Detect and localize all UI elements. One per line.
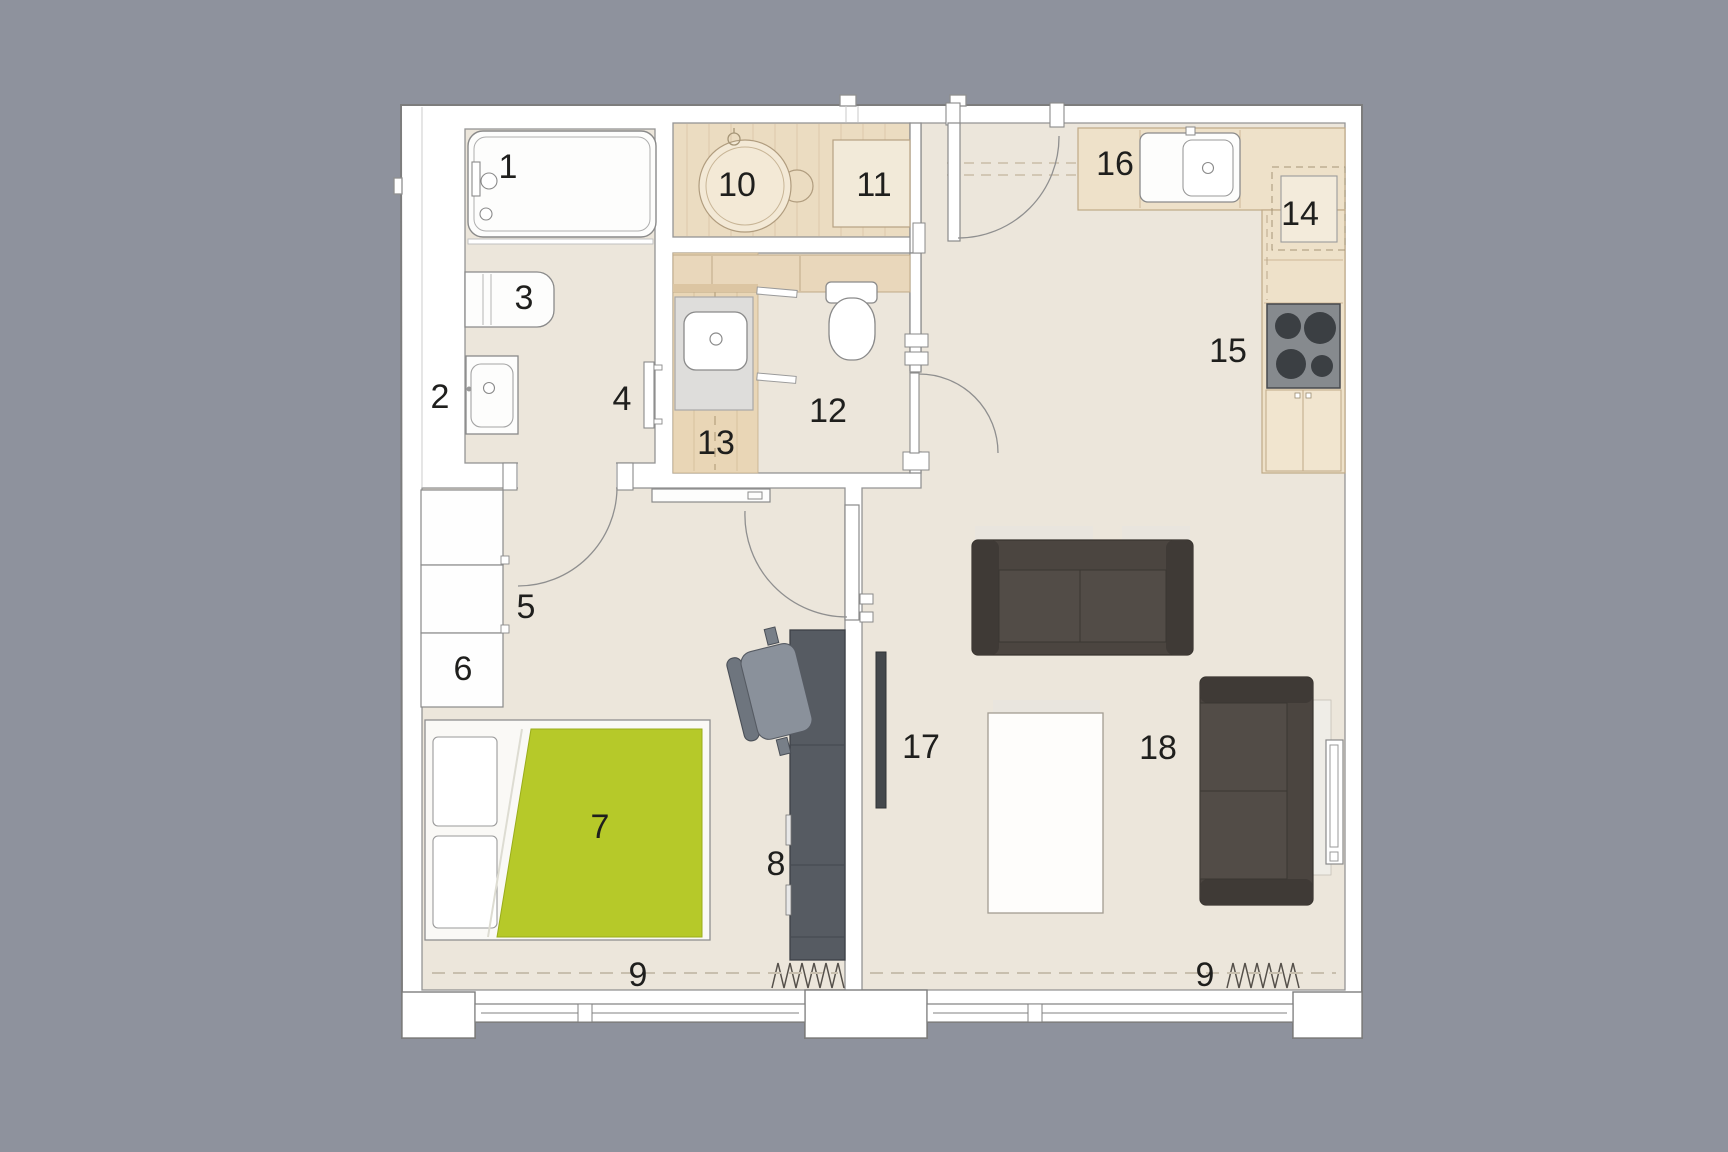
bath-basin-dot-icon [467,387,472,392]
label-window-bedroom: 9 [629,956,648,994]
label-washbasin-bath: 2 [431,378,450,416]
entry-door-post-right [1050,103,1064,127]
label-washing-machine: 3 [515,279,534,317]
hall-door-leaf [845,505,859,620]
bathtub-shelf [468,239,653,244]
floor-plan-page: 1 2 3 4 5 6 7 8 9 10 11 12 13 14 15 16 1… [0,0,1728,1152]
wall-joint-tab-left [394,178,402,194]
label-wc: 12 [809,392,847,430]
label-washbasin-wc: 13 [697,424,735,462]
label-stove: 15 [1209,332,1247,370]
sofa-h-arm-right [1166,540,1193,655]
label-cabinet-low: 6 [454,650,473,688]
hall-door-bracket-2 [860,612,873,622]
wall-joint-tab-top1 [840,95,856,106]
sink-drain-icon [1203,163,1214,174]
cabinet-knob-right [1306,393,1311,398]
bathtub-drain-icon [480,208,492,220]
pier-left [402,992,475,1038]
desk-handle-2 [786,885,791,915]
wardrobe-hinge-2 [501,625,509,633]
pier-right [1293,992,1362,1038]
wardrobe-hinge-1 [501,556,509,564]
washing-machine [465,272,554,327]
coffee-table-shadow [993,700,1100,714]
bathtub-tap-icon [472,162,480,196]
wc-cabinet-dark-band [673,284,758,292]
entry-door-post-left [946,103,960,125]
hall-door-bracket-1 [860,594,873,604]
bed-pillow-2 [433,836,497,928]
burner-4 [1311,355,1333,377]
bathroom-door-post-right [617,463,633,490]
label-towel-radiator: 4 [613,380,632,418]
wc-door-post-bottom [903,452,929,470]
wc-door-bracket-1 [905,334,928,347]
bathtub-handle-icon [481,173,497,189]
towel-radiator [644,362,654,428]
wardrobe-middle [421,565,503,633]
bath-basin-faucet-icon [484,383,495,394]
toilet-bowl [829,298,875,360]
label-bed: 7 [591,808,610,846]
wc-door-bracket-2 [905,352,928,365]
coffee-table [988,713,1103,913]
label-desk: 8 [767,845,786,883]
label-living: 18 [1139,729,1177,767]
label-sink: 16 [1096,145,1134,183]
towel-radiator-bracket-bottom [654,419,662,424]
sofa-v-seat-top [1200,703,1287,791]
floor-plan-drawing: 1 2 3 4 5 6 7 8 9 10 11 12 13 14 15 16 1… [0,0,1728,1152]
desk-handle-1 [786,815,791,845]
entry-door-leaf [948,123,960,241]
wardrobe-top [421,490,503,565]
window-mullion-left [578,1004,592,1022]
label-tv: 17 [902,728,940,766]
wc-door-leaf [910,373,919,453]
bed-pillow-1 [433,737,497,826]
wc-sliding-door [652,489,770,502]
burner-1 [1275,313,1301,339]
sofa-v-arm-bottom [1200,879,1313,905]
window-mullion-right [1028,1004,1042,1022]
sofa-h-arm-left [972,540,999,655]
sofa-h-seat-left [999,570,1080,642]
label-bathtub: 1 [499,148,518,186]
label-appliance: 14 [1281,195,1319,233]
sofa-v-seat-bottom [1200,791,1287,879]
wall-radiator-living [1326,740,1343,864]
tv [876,652,886,808]
sofa-v-arm-top [1200,677,1313,703]
wc-door-post-top [913,223,925,253]
wc-basin-faucet-icon [710,333,722,345]
sofa-h-seat-right [1080,570,1166,642]
cabinet-knob-left [1295,393,1300,398]
sink-tap-icon [1186,127,1195,135]
burner-2 [1304,312,1336,344]
bathroom-door-threshold [518,461,616,490]
burner-3 [1276,349,1306,379]
label-round-table: 10 [718,166,756,204]
towel-radiator-bracket-top [654,365,662,370]
label-sideboard: 11 [856,166,891,204]
bathroom-door-post-left [503,463,517,490]
label-wardrobe: 5 [517,588,536,626]
pier-middle [805,990,927,1038]
label-window-living: 9 [1196,956,1215,994]
